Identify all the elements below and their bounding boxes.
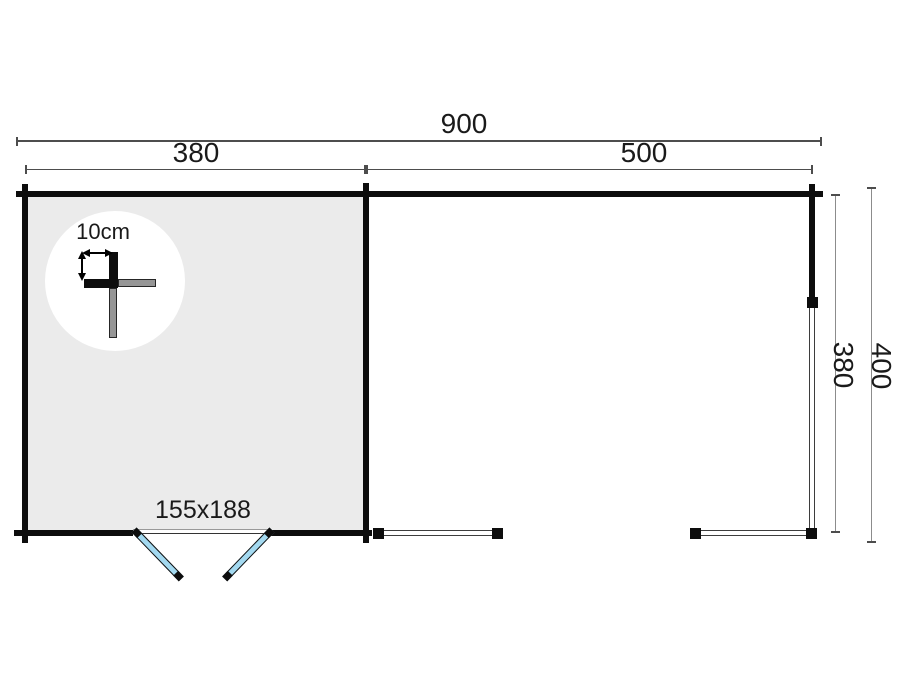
canopy-post-3 [690, 528, 701, 539]
wall-right [809, 184, 815, 302]
canopy-beam-left [378, 530, 497, 536]
log-end-black-horizontal [84, 279, 118, 288]
floor-plan: 900 380 500 380 400 155x188 10cm [0, 0, 902, 700]
dimension-canopy-width-label: 500 [584, 138, 704, 168]
canopy-post-1 [373, 528, 384, 539]
wall-bottom-right [270, 530, 372, 536]
canopy-post-2 [492, 528, 503, 539]
wall-left [22, 184, 28, 543]
log-end-gray-vertical [109, 288, 117, 338]
height-arrow-icon [81, 259, 83, 273]
canopy-post-4 [806, 528, 817, 539]
wall-top [16, 191, 823, 197]
canopy-beam-side [809, 302, 815, 533]
wall-bottom-left [14, 530, 133, 536]
dimension-depth-inner-label: 380 [828, 333, 858, 397]
wall-thickness-label: 10cm [63, 219, 143, 245]
wall-post-right [807, 297, 818, 308]
wall-divider [363, 183, 369, 543]
door-size-label: 155x188 [133, 495, 273, 525]
dimension-depth-outer-label: 400 [866, 334, 896, 398]
dimension-canopy-width-line [366, 169, 813, 170]
dimension-cabin-width-label: 380 [136, 138, 256, 168]
log-end-gray-horizontal [118, 279, 156, 287]
canopy-beam-right [695, 530, 812, 536]
dimension-total-width-label: 900 [404, 109, 524, 139]
width-arrow-icon [90, 252, 105, 254]
door-leaf-left [132, 528, 184, 582]
door-leaf-right [222, 528, 274, 582]
dimension-cabin-width-line [25, 169, 366, 170]
door-threshold [133, 529, 270, 534]
detail-callout-circle: 10cm [45, 211, 185, 351]
